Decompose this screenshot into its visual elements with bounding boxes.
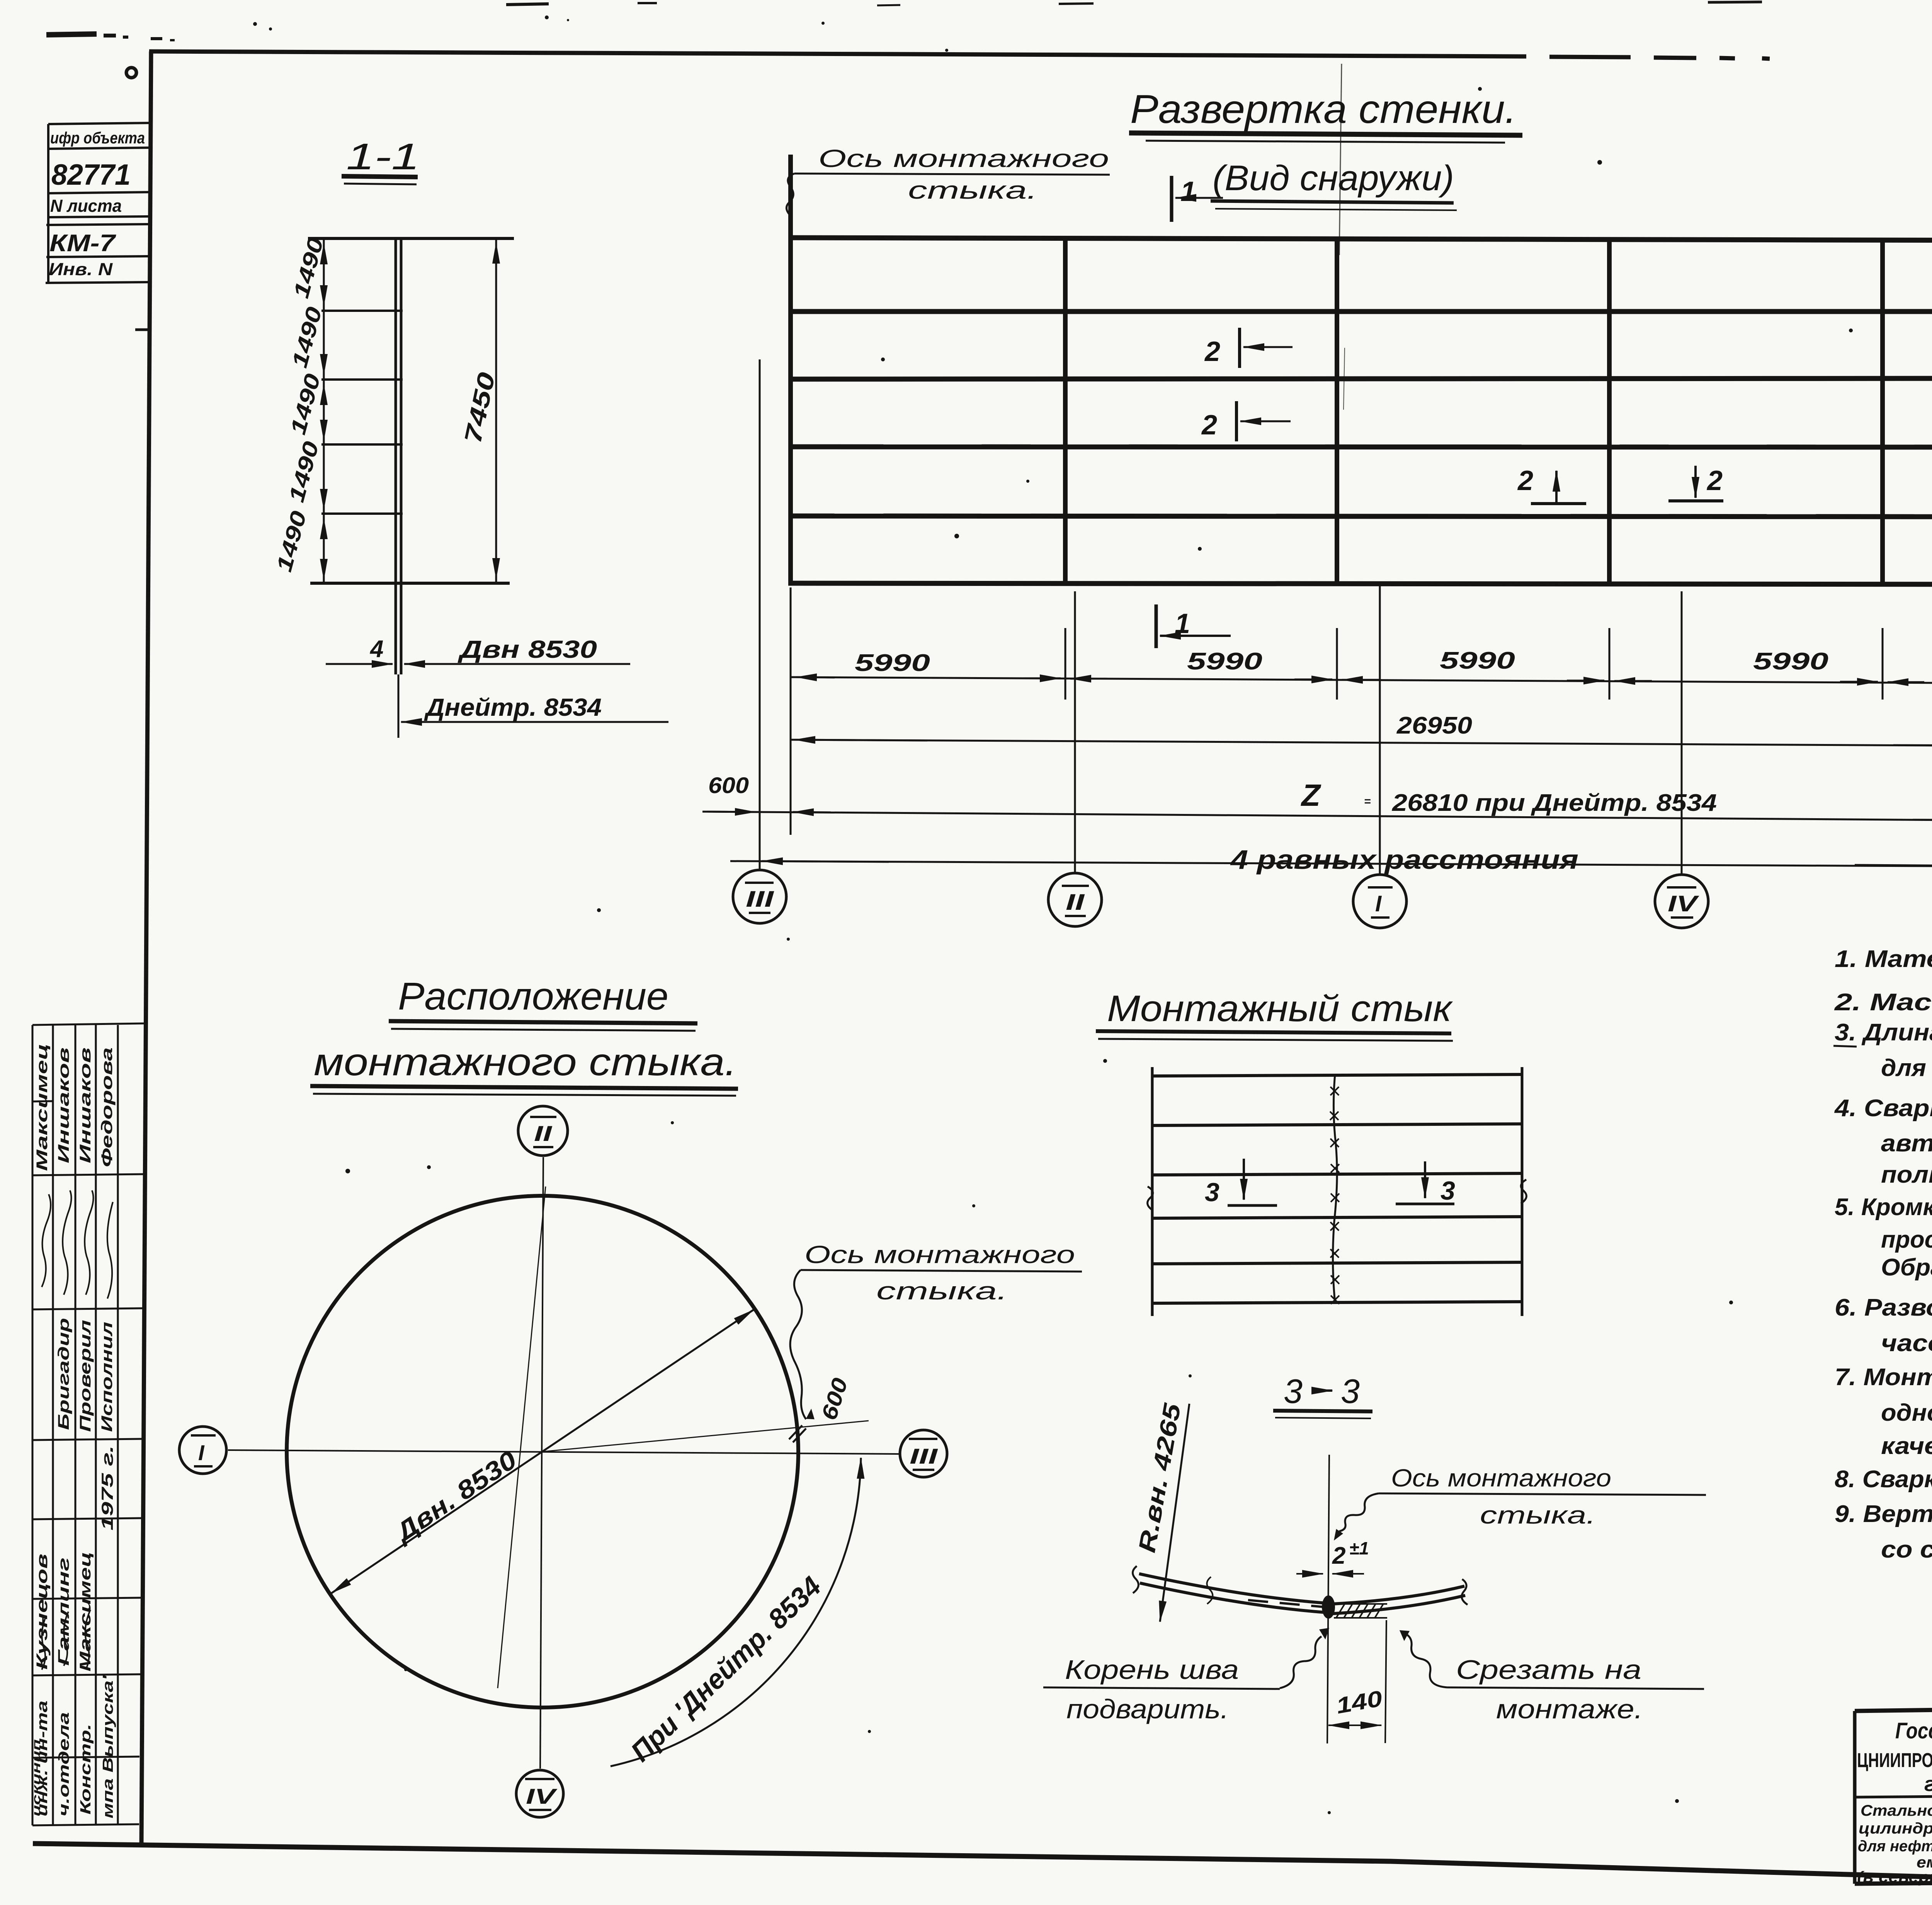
svg-text:82771: 82771 [51, 158, 131, 191]
svg-text:Обработка листов должна про: Обработка листов должна производиться с … [1881, 1254, 1932, 1281]
svg-text:IV: IV [526, 1784, 558, 1808]
svg-text:ифр объекта: ифр объекта [50, 129, 145, 147]
svg-text:8. Сварку производить электр: 8. Сварку производить электродами типа Э… [1835, 1466, 1932, 1493]
svg-text:монтажного стыка.: монтажного стыка. [314, 1040, 737, 1084]
svg-text:5990: 5990 [1187, 648, 1262, 675]
svg-text:26950: 26950 [1396, 712, 1472, 739]
svg-text:6. Разворачивание рулона на: 6. Разворачивание рулона на монтаже прои… [1835, 1294, 1932, 1321]
svg-text:одного или двух краёв поло: одного или двух краёв полотнища, в завис… [1881, 1399, 1932, 1426]
svg-text:Иншаков: Иншаков [55, 1047, 72, 1163]
svg-text:Монтажный стык: Монтажный стык [1107, 988, 1453, 1029]
svg-text:Иншаков: Иншаков [77, 1047, 94, 1163]
svg-text:КМ-7: КМ-7 [49, 230, 116, 257]
svg-text:Проверил: Проверил [77, 1320, 94, 1432]
svg-text:2: 2 [1517, 465, 1533, 496]
svg-text:5. Кромки листов, свариваемых: 5. Кромки листов, свариваемых встык, дол… [1835, 1194, 1932, 1221]
svg-text:5990: 5990 [1753, 648, 1828, 675]
svg-text:Расположение: Расположение [398, 975, 668, 1018]
svg-text:Констр.: Констр. [78, 1724, 94, 1815]
svg-text:Днейтр. 8534: Днейтр. 8534 [424, 693, 602, 721]
svg-text:1490: 1490 [272, 508, 311, 574]
svg-text:ЦНИИПРОЕКТСТАЛЬКОНСТРУКЦИЯ: ЦНИИПРОЕКТСТАЛЬКОНСТРУКЦИЯ [1857, 1749, 1932, 1772]
svg-text:±1: ±1 [1349, 1538, 1369, 1558]
svg-text:часовой стрелке.: часовой стрелке. [1881, 1330, 1932, 1357]
svg-text:3. Длина полотнища стенки д: 3. Длина полотнища стенки дана с припуск… [1835, 1019, 1932, 1046]
svg-text:4: 4 [369, 636, 383, 662]
svg-text:II: II [1066, 890, 1085, 915]
svg-text:N листа: N листа [50, 196, 122, 216]
svg-text:I: I [198, 1440, 205, 1465]
svg-text:Госстрой СССР: Госстрой СССР [1895, 1718, 1932, 1743]
svg-text:Z: Z [1301, 778, 1321, 812]
svg-text:для нефти и нефтепродуктов: для нефти и нефтепродуктов [1858, 1838, 1932, 1855]
svg-text:26810 при Днейтр. 8534: 26810 при Днейтр. 8534 [1392, 790, 1717, 816]
svg-text:5990: 5990 [1440, 647, 1515, 674]
svg-text:При 'Днейтр. 8534: При 'Днейтр. 8534 [625, 1571, 827, 1767]
svg-text:140: 140 [1334, 1686, 1384, 1719]
svg-text:5990: 5990 [855, 650, 930, 676]
svg-text:Стальной вертикальный: Стальной вертикальный [1861, 1802, 1932, 1819]
svg-text:3: 3 [1205, 1178, 1219, 1207]
svg-text:1490: 1490 [284, 439, 323, 505]
svg-text:4. Сварку листов полотнища: 4. Сварку листов полотнища производить д… [1834, 1095, 1932, 1122]
svg-text:г. Москва: г. Москва [1924, 1772, 1932, 1796]
svg-text:7. Монтажный стык стенки вы: 7. Монтажный стык стенки выполнять встык… [1835, 1364, 1932, 1391]
svg-text:3: 3 [1341, 1372, 1360, 1410]
svg-text:2: 2 [1706, 465, 1723, 496]
svg-text:Гамлинг: Гамлинг [55, 1558, 72, 1666]
svg-text:IV: IV [1668, 891, 1699, 916]
svg-text:стыка.: стыка. [908, 176, 1037, 204]
svg-text:стыка.: стыка. [1480, 1501, 1596, 1529]
svg-text:полным проваром по толщине: полным проваром по толщине свариваемого … [1881, 1161, 1932, 1188]
svg-text:качества кромок, и с просве: качества кромок, и с просвечиванием шва … [1881, 1433, 1932, 1459]
svg-text:со стыками днища на 200 мм: со стыками днища на 200 мм. [1881, 1536, 1932, 1563]
svg-text:(Вид снаружи): (Вид снаружи) [1213, 158, 1454, 198]
svg-text:стыка.: стыка. [876, 1277, 1008, 1305]
svg-text:600: 600 [708, 773, 749, 798]
svg-text:1490: 1490 [289, 235, 328, 301]
svg-text:Ось монтажного: Ось монтажного [1391, 1464, 1611, 1492]
svg-text:2: 2 [1204, 336, 1220, 367]
svg-text:=: = [1364, 795, 1371, 808]
svg-text:4 равных расстояния: 4 равных расстояния [1230, 844, 1578, 875]
svg-text:3: 3 [1440, 1176, 1455, 1205]
svg-text:1975 г.: 1975 г. [98, 1445, 116, 1530]
svg-text:II: II [534, 1121, 553, 1146]
svg-text:Двн. 8530: Двн. 8530 [389, 1445, 522, 1548]
svg-text:подварить.: подварить. [1066, 1694, 1229, 1724]
svg-text:7450: 7450 [459, 370, 500, 446]
svg-text:цилиндрический резервуар: цилиндрический резервуар [1859, 1820, 1932, 1837]
svg-text:1-1: 1-1 [346, 136, 420, 177]
svg-text:монтаже.: монтаже. [1496, 1694, 1643, 1724]
svg-text:мпа Выпуска': мпа Выпуска' [100, 1674, 116, 1818]
svg-text:Ось монтажного: Ось монтажного [818, 145, 1109, 172]
svg-text:Федорова: Федорова [99, 1047, 116, 1167]
svg-text:Двн 8530: Двн 8530 [457, 635, 597, 663]
svg-text:автоматической сваркой плотн: автоматической сваркой плотнопрочными шв… [1881, 1130, 1932, 1157]
svg-text:Развертка стенки.: Развертка стенки. [1130, 87, 1517, 132]
svg-text:Максимец: Максимец [34, 1044, 51, 1171]
svg-text:III: III [910, 1444, 938, 1468]
svg-text:(в северном исполнении): (в северном исполнении) [1857, 1869, 1932, 1886]
svg-text:Кузнецов: Кузнецов [34, 1554, 51, 1670]
svg-text:прострожкой или обрезаны на: прострожкой или обрезаны на гильотинных … [1881, 1226, 1932, 1253]
svg-text:ч.отдела: ч.отдела [56, 1712, 72, 1816]
svg-text:1: 1 [1180, 176, 1196, 207]
svg-text:2: 2 [1201, 410, 1217, 441]
svg-text:R.вн. 4265: R.вн. 4265 [1134, 1401, 1186, 1554]
svg-text:Исполнил: Исполнил [99, 1322, 116, 1432]
svg-text:I: I [1375, 891, 1382, 916]
svg-text:1490: 1490 [286, 371, 325, 437]
svg-text:1. Материал см. техническую: 1. Материал см. техническую спецификацию… [1835, 946, 1932, 972]
svg-text:Срезать на: Срезать на [1456, 1655, 1641, 1685]
svg-text:1: 1 [1175, 608, 1190, 639]
svg-text:1490: 1490 [287, 304, 327, 370]
svg-text:Инв. N: Инв. N [49, 259, 113, 279]
svg-text:Корень шва: Корень шва [1065, 1655, 1239, 1685]
svg-text:9. Вертикальные стыки стенки: 9. Вертикальные стыки стенки не должны с… [1835, 1501, 1932, 1527]
svg-text:для образования монтажного: для образования монтажного стыка. [1881, 1055, 1932, 1081]
svg-text:Ось монтажного: Ось монтажного [804, 1241, 1075, 1268]
svg-text:искинип: искинип [30, 1739, 43, 1816]
svg-text:Бригадир: Бригадир [55, 1318, 72, 1430]
svg-text:600: 600 [816, 1375, 852, 1423]
svg-text:2: 2 [1332, 1542, 1345, 1569]
svg-text:2. Масса стенки- 6300 кг.: 2. Масса стенки- 6300 кг. [1834, 989, 1932, 1016]
svg-text:3: 3 [1284, 1372, 1303, 1410]
svg-text:Максимец: Максимец [77, 1552, 94, 1672]
svg-text:III: III [746, 887, 775, 912]
